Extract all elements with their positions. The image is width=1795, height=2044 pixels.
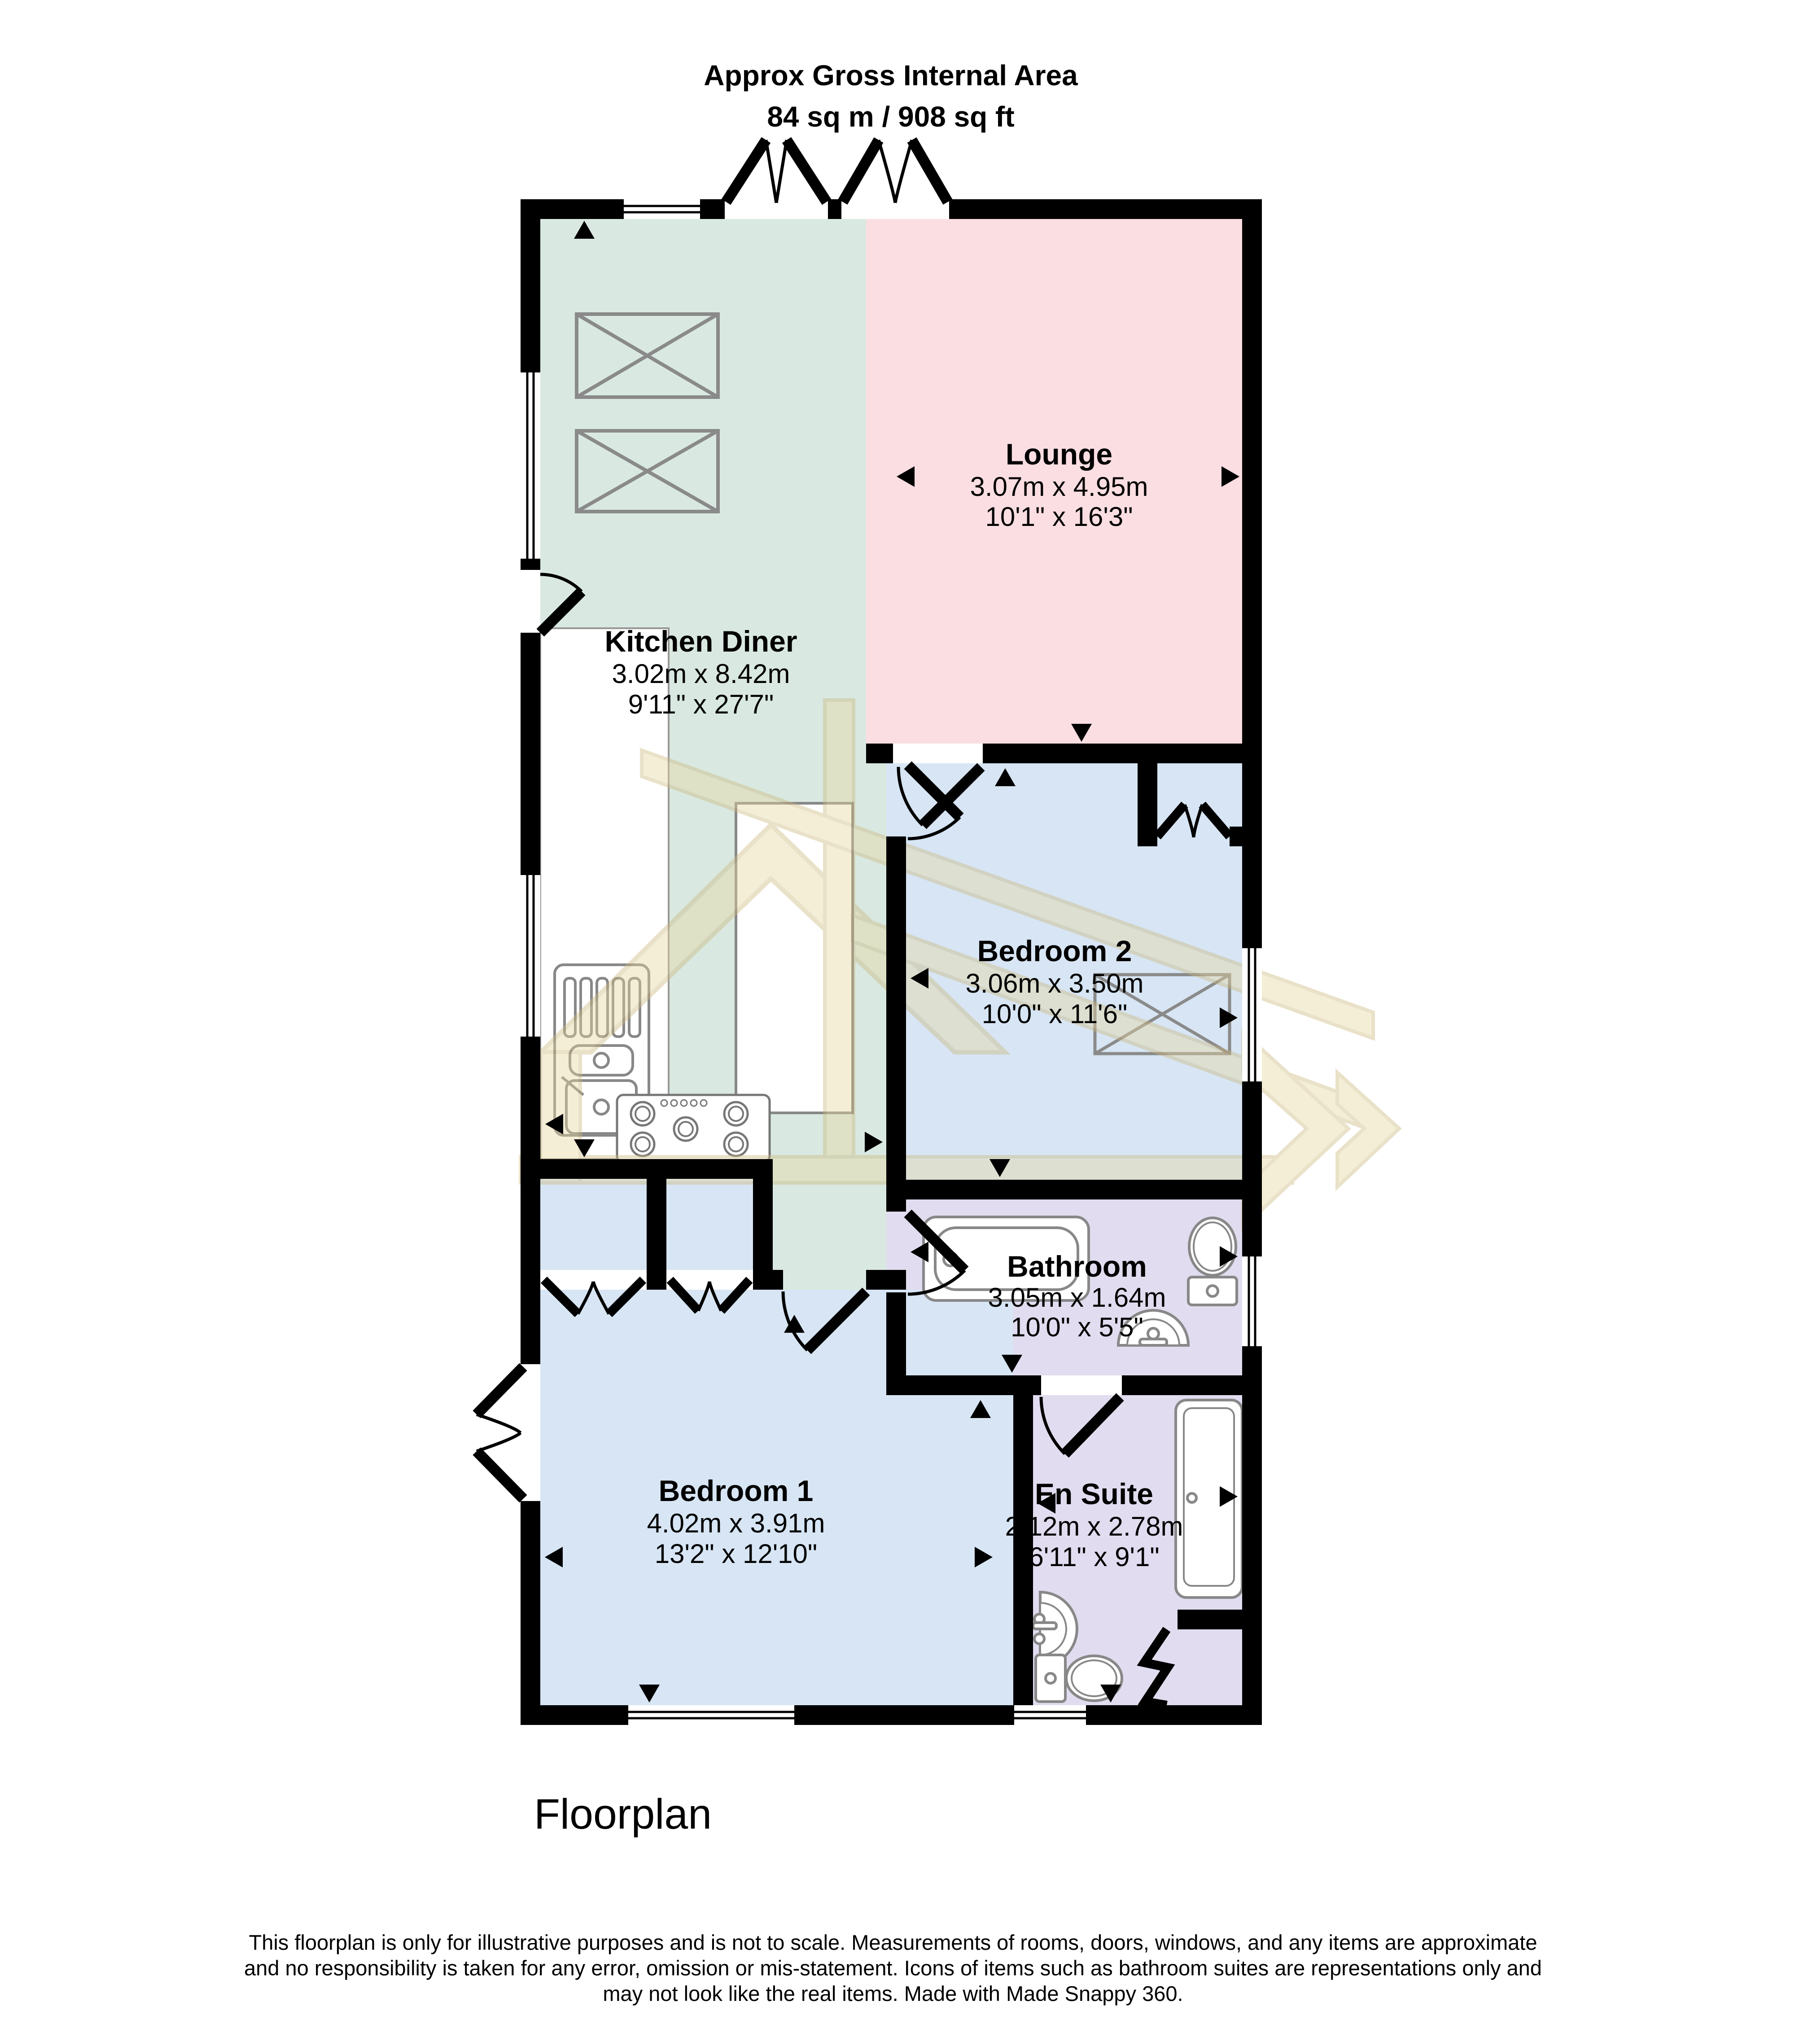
french-doors-lounge-top bbox=[843, 140, 948, 203]
room-imperial: 10'0" x 11'6" bbox=[982, 999, 1128, 1029]
room-name: Bedroom 2 bbox=[977, 934, 1132, 967]
window-bedroom1-bottom bbox=[628, 1705, 794, 1725]
window-bathroom-right bbox=[1242, 1256, 1262, 1346]
window-kitchen-left-upper bbox=[521, 372, 540, 559]
room-imperial: 10'0" x 5'5" bbox=[1011, 1312, 1143, 1342]
room-metric: 2.12m x 2.78m bbox=[1005, 1511, 1183, 1541]
room-label-bedroom1: Bedroom 1 4.02m x 3.91m 13'2" x 12'10" bbox=[647, 1474, 825, 1569]
window-kitchen-left-lower bbox=[521, 875, 540, 1037]
room-label-bathroom: Bathroom 3.05m x 1.64m 10'0" x 5'5" bbox=[988, 1250, 1166, 1342]
disclaimer-line2: and no responsibility is taken for any e… bbox=[244, 1956, 1542, 1980]
toilet-icon bbox=[1188, 1218, 1237, 1305]
room-imperial: 9'11" x 27'7" bbox=[628, 689, 774, 719]
french-doors-kitchen-top bbox=[726, 140, 827, 203]
room-name: En Suite bbox=[1035, 1477, 1153, 1510]
room-name: Lounge bbox=[1006, 438, 1112, 471]
hob-icon bbox=[617, 1095, 770, 1162]
room-metric: 3.06m x 3.50m bbox=[966, 968, 1144, 998]
room-name: Kitchen Diner bbox=[604, 625, 797, 658]
room-metric: 4.02m x 3.91m bbox=[647, 1508, 825, 1538]
room-name: Bedroom 1 bbox=[659, 1474, 814, 1507]
page-title-line2: 84 sq m / 908 sq ft bbox=[767, 101, 1014, 133]
floorplan-drawing: Approx Gross Internal Area 84 sq m / 908… bbox=[0, 0, 1795, 2044]
page-title-line1: Approx Gross Internal Area bbox=[704, 59, 1078, 92]
room-metric: 3.05m x 1.64m bbox=[988, 1282, 1166, 1313]
room-imperial: 6'11" x 9'1" bbox=[1029, 1542, 1159, 1572]
room-label-bedroom2: Bedroom 2 3.06m x 3.50m 10'0" x 11'6" bbox=[966, 934, 1144, 1029]
bedroom2-door-gap-floor bbox=[886, 763, 906, 836]
room-metric: 3.07m x 4.95m bbox=[970, 472, 1148, 502]
room-label-kitchen-diner: Kitchen Diner 3.02m x 8.42m 9'11" x 27'7… bbox=[604, 625, 797, 719]
room-metric: 3.02m x 8.42m bbox=[612, 659, 790, 689]
window-bedroom2-right bbox=[1242, 948, 1262, 1081]
room-imperial: 10'1" x 16'3" bbox=[985, 502, 1133, 532]
window-ensuite-bottom bbox=[1014, 1705, 1086, 1725]
window-kitchen-top bbox=[624, 199, 700, 219]
disclaimer-line1: This floorplan is only for illustrative … bbox=[249, 1930, 1537, 1954]
room-imperial: 13'2" x 12'10" bbox=[655, 1539, 817, 1569]
floorplan-page: Approx Gross Internal Area 84 sq m / 908… bbox=[0, 0, 1795, 2044]
floorplan-caption: Floorplan bbox=[534, 1790, 712, 1838]
disclaimer-line3: may not look like the real items. Made w… bbox=[603, 1982, 1183, 2005]
room-name: Bathroom bbox=[1007, 1250, 1147, 1283]
french-doors-bedroom1-left bbox=[477, 1367, 523, 1499]
